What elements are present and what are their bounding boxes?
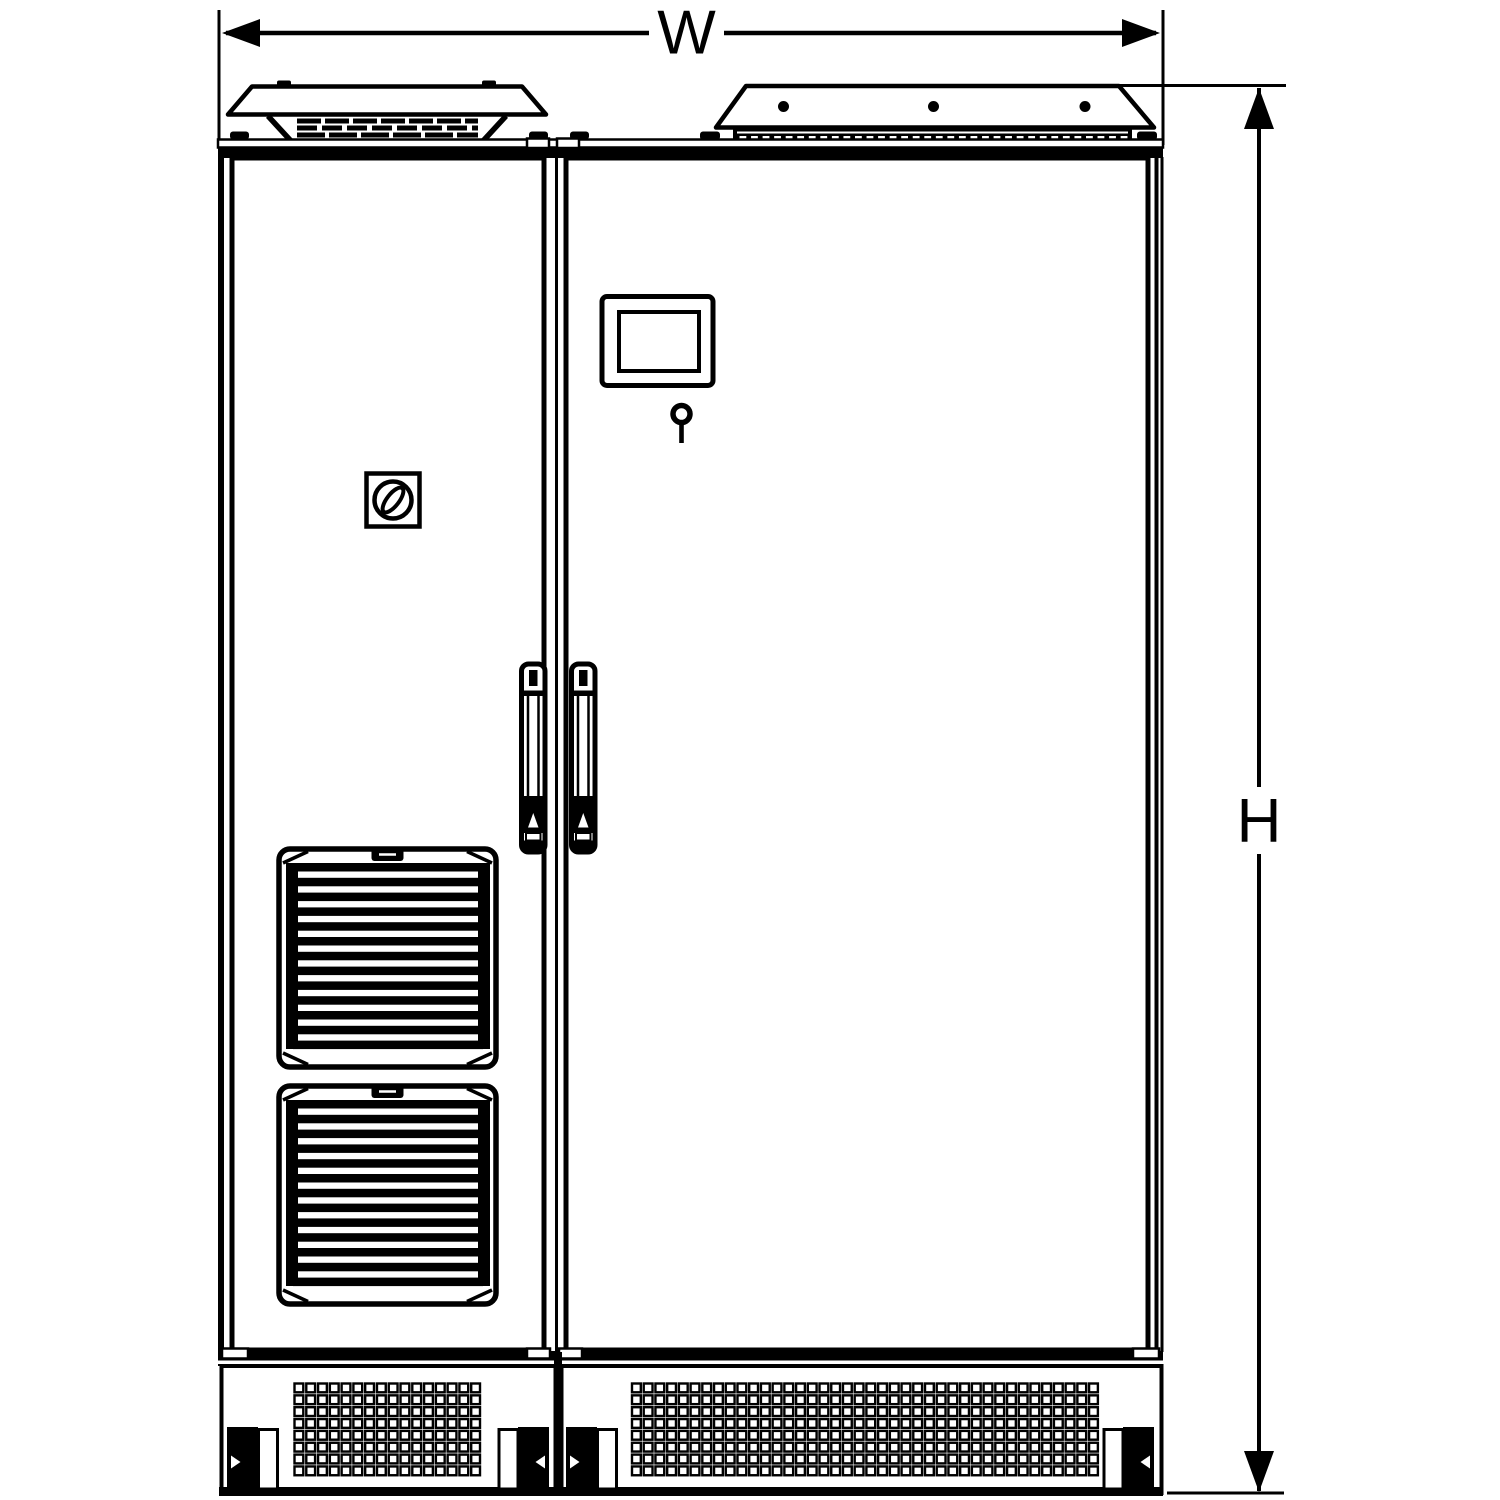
texture-cell — [632, 1419, 641, 1428]
texture-cell — [401, 1431, 410, 1440]
texture-cell — [1019, 1407, 1028, 1416]
rail-cap-bump — [230, 132, 249, 140]
texture-cell — [691, 1466, 700, 1475]
texture-cell — [1030, 1395, 1039, 1404]
texture-cell — [353, 1455, 362, 1464]
texture-cell — [1042, 1395, 1051, 1404]
texture-cell — [866, 1384, 875, 1393]
texture-cell — [365, 1466, 374, 1475]
texture-cell — [655, 1466, 664, 1475]
texture-cell — [318, 1443, 327, 1452]
texture-cell — [655, 1443, 664, 1452]
texture-cell — [890, 1407, 899, 1416]
texture-cell — [714, 1395, 723, 1404]
texture-cell — [960, 1384, 969, 1393]
texture-cell — [855, 1419, 864, 1428]
texture-cell — [737, 1407, 746, 1416]
texture-cell — [389, 1419, 398, 1428]
texture-cell — [761, 1443, 770, 1452]
texture-cell — [855, 1431, 864, 1440]
texture-cell — [1007, 1431, 1016, 1440]
texture-cell — [761, 1384, 770, 1393]
texture-cell — [679, 1384, 688, 1393]
texture-cell — [436, 1455, 445, 1464]
texture-cell — [784, 1419, 793, 1428]
texture-cell — [342, 1466, 351, 1475]
texture-cell — [1019, 1395, 1028, 1404]
texture-cell — [1042, 1431, 1051, 1440]
fan-filter-bottom — [279, 1085, 496, 1304]
texture-cell — [667, 1431, 676, 1440]
texture-cell — [644, 1384, 653, 1393]
texture-cell — [1030, 1407, 1039, 1416]
texture-cell — [365, 1431, 374, 1440]
texture-cell — [843, 1407, 852, 1416]
texture-cell — [737, 1419, 746, 1428]
rail-cap-bump — [1137, 132, 1157, 141]
texture-cell — [293, 1041, 483, 1050]
texture-cell — [855, 1407, 864, 1416]
rail-hinge-cap — [222, 1349, 248, 1359]
texture-cell — [878, 1455, 887, 1464]
bottom-rail-bar — [218, 1351, 1163, 1361]
key-shaft — [679, 422, 684, 443]
screw-dot-icon — [928, 101, 939, 112]
texture-cell — [1019, 1443, 1028, 1452]
texture-cell — [995, 1455, 1004, 1464]
texture-cell — [972, 1466, 981, 1475]
texture-cell — [293, 981, 483, 990]
texture-cell — [1089, 1407, 1098, 1416]
texture-cell — [831, 1455, 840, 1464]
texture-cell — [330, 1395, 339, 1404]
plinth-gap-bar — [554, 1352, 562, 1496]
texture-cell — [471, 1419, 480, 1428]
texture-cell — [937, 1395, 946, 1404]
texture-cell — [784, 1443, 793, 1452]
texture-cell — [471, 1466, 480, 1475]
texture-cell — [1030, 1455, 1039, 1464]
texture-cell — [937, 1431, 946, 1440]
texture-cell — [726, 1455, 735, 1464]
texture-cell — [984, 1431, 993, 1440]
texture-cell — [784, 1384, 793, 1393]
texture-cell — [714, 1431, 723, 1440]
texture-cell — [306, 1466, 315, 1475]
handle-foot-band — [576, 833, 591, 841]
texture-cell — [389, 1466, 398, 1475]
texture-cell — [342, 1384, 351, 1393]
texture-cell — [773, 1431, 782, 1440]
texture-cell — [365, 1419, 374, 1428]
texture-cell — [937, 1466, 946, 1475]
texture-cell — [726, 1466, 735, 1475]
texture-cell — [1042, 1407, 1051, 1416]
texture-cell — [890, 1443, 899, 1452]
texture-cell — [353, 1419, 362, 1428]
texture-cell — [448, 1431, 457, 1440]
texture-cell — [293, 1248, 483, 1257]
rail-hinge-cap — [527, 1349, 550, 1359]
top-entry-gland-plate-icon — [716, 86, 1154, 147]
texture-cell — [306, 1455, 315, 1464]
texture-cell — [855, 1384, 864, 1393]
texture-cell — [761, 1407, 770, 1416]
texture-cell — [293, 1026, 483, 1035]
texture-cell — [330, 1431, 339, 1440]
texture-cell — [925, 1407, 934, 1416]
texture-cell — [843, 1419, 852, 1428]
arrow-up-icon — [1244, 88, 1274, 129]
texture-cell — [843, 1431, 852, 1440]
texture-cell — [866, 1395, 875, 1404]
texture-cell — [808, 1395, 817, 1404]
texture-cell — [293, 1204, 483, 1213]
texture-cell — [330, 1419, 339, 1428]
texture-cell — [714, 1407, 723, 1416]
texture-cell — [1089, 1443, 1098, 1452]
texture-cell — [808, 1419, 817, 1428]
hood-leg-right — [483, 116, 506, 141]
texture-cell — [412, 1443, 421, 1452]
texture-cell — [377, 1407, 386, 1416]
texture-cell — [330, 1407, 339, 1416]
texture-cell — [925, 1455, 934, 1464]
texture-cell — [808, 1407, 817, 1416]
texture-cell — [890, 1466, 899, 1475]
texture-cell — [831, 1466, 840, 1475]
texture-cell — [1066, 1455, 1075, 1464]
texture-cell — [784, 1466, 793, 1475]
texture-cell — [913, 1431, 922, 1440]
texture-cell — [726, 1431, 735, 1440]
texture-cell — [1019, 1384, 1028, 1393]
texture-cell — [471, 1443, 480, 1452]
texture-cell — [1030, 1466, 1039, 1475]
texture-cell — [293, 1130, 483, 1139]
texture-cell — [902, 1466, 911, 1475]
texture-cell — [855, 1466, 864, 1475]
texture-cell — [644, 1431, 653, 1440]
texture-cell — [293, 952, 483, 961]
texture-cell — [702, 1419, 711, 1428]
texture-cell — [913, 1443, 922, 1452]
texture-cell — [913, 1466, 922, 1475]
texture-cell — [866, 1443, 875, 1452]
texture-cell — [726, 1384, 735, 1393]
handle-cross-bar — [574, 691, 594, 697]
texture-cell — [972, 1407, 981, 1416]
bracket-strip — [499, 1430, 518, 1490]
texture-cell — [342, 1419, 351, 1428]
texture-cell — [412, 1455, 421, 1464]
fan-filter-top — [279, 848, 496, 1067]
texture-cell — [796, 1443, 805, 1452]
texture-cell — [293, 996, 483, 1005]
hood-leg-left — [268, 116, 291, 141]
rail-cap-bump — [700, 132, 720, 141]
texture-cell — [878, 1384, 887, 1393]
texture-cell — [655, 1419, 664, 1428]
texture-cell — [1030, 1443, 1039, 1452]
texture-cell — [412, 1395, 421, 1404]
texture-cell — [773, 1466, 782, 1475]
texture-cell — [714, 1384, 723, 1393]
texture-cell — [913, 1407, 922, 1416]
texture-cell — [1042, 1443, 1051, 1452]
texture-cell — [293, 1174, 483, 1183]
texture-cell — [1077, 1455, 1086, 1464]
texture-cell — [655, 1431, 664, 1440]
texture-cell — [679, 1466, 688, 1475]
texture-cell — [984, 1466, 993, 1475]
texture-cell — [1077, 1466, 1086, 1475]
texture-cell — [655, 1395, 664, 1404]
texture-cell — [995, 1443, 1004, 1452]
texture-cell — [632, 1407, 641, 1416]
texture-cell — [436, 1419, 445, 1428]
texture-cell — [820, 1466, 829, 1475]
texture-cell — [293, 1159, 483, 1168]
texture-cell — [644, 1455, 653, 1464]
texture-cell — [948, 1395, 957, 1404]
texture-cell — [820, 1443, 829, 1452]
bracket-strip — [598, 1430, 617, 1490]
texture-cell — [1066, 1419, 1075, 1428]
texture-cell — [306, 1419, 315, 1428]
texture-cell — [925, 1384, 934, 1393]
texture-cell — [353, 1431, 362, 1440]
texture-cell — [902, 1407, 911, 1416]
texture-cell — [843, 1384, 852, 1393]
texture-cell — [960, 1443, 969, 1452]
texture-cell — [306, 1384, 315, 1393]
arrow-left-icon — [222, 19, 260, 47]
texture-cell — [679, 1395, 688, 1404]
texture-cell — [342, 1395, 351, 1404]
texture-cell — [448, 1419, 457, 1428]
texture-cell — [295, 1384, 304, 1393]
texture-cell — [412, 1466, 421, 1475]
texture-cell — [866, 1431, 875, 1440]
texture-cell — [937, 1407, 946, 1416]
texture-cell — [726, 1395, 735, 1404]
texture-cell — [890, 1384, 899, 1393]
texture-cell — [972, 1455, 981, 1464]
texture-cell — [1089, 1395, 1098, 1404]
texture-cell — [737, 1431, 746, 1440]
texture-cell — [412, 1419, 421, 1428]
door-handle-right — [572, 664, 596, 852]
texture-cell — [436, 1443, 445, 1452]
texture-cell — [295, 1443, 304, 1452]
texture-cell — [459, 1384, 468, 1393]
texture-cell — [330, 1384, 339, 1393]
texture-cell — [960, 1395, 969, 1404]
texture-cell — [773, 1395, 782, 1404]
texture-cell — [960, 1466, 969, 1475]
texture-cell — [459, 1395, 468, 1404]
texture-cell — [1019, 1466, 1028, 1475]
roof-fan-hood-icon — [228, 81, 546, 146]
drawing-canvas: W H — [0, 0, 1500, 1500]
texture-cell — [1054, 1384, 1063, 1393]
texture-cell — [632, 1455, 641, 1464]
texture-cell — [702, 1443, 711, 1452]
texture-cell — [401, 1419, 410, 1428]
texture-cell — [937, 1384, 946, 1393]
texture-cell — [644, 1419, 653, 1428]
texture-cell — [1030, 1384, 1039, 1393]
texture-cell — [436, 1384, 445, 1393]
handle-foot — [574, 841, 594, 850]
texture-cell — [448, 1395, 457, 1404]
texture-cell — [902, 1443, 911, 1452]
texture-cell — [293, 1144, 483, 1153]
texture-cell — [679, 1407, 688, 1416]
texture-cell — [471, 1395, 480, 1404]
texture-cell — [632, 1443, 641, 1452]
texture-cell — [1030, 1419, 1039, 1428]
texture-cell — [293, 937, 483, 946]
texture-cell — [831, 1419, 840, 1428]
texture-cell — [902, 1455, 911, 1464]
texture-cell — [1089, 1384, 1098, 1393]
texture-cell — [436, 1395, 445, 1404]
arrow-down-icon — [1244, 1451, 1274, 1492]
texture-cell — [1054, 1455, 1063, 1464]
texture-cell — [761, 1431, 770, 1440]
texture-cell — [796, 1395, 805, 1404]
bracket-strip — [1104, 1430, 1123, 1490]
texture-cell — [831, 1443, 840, 1452]
texture-cell — [306, 1443, 315, 1452]
texture-cell — [1089, 1431, 1098, 1440]
texture-cell — [1054, 1419, 1063, 1428]
texture-cell — [644, 1466, 653, 1475]
texture-cell — [925, 1419, 934, 1428]
texture-cell — [995, 1466, 1004, 1475]
texture-cell — [878, 1419, 887, 1428]
texture-cell — [796, 1431, 805, 1440]
texture-cell — [773, 1407, 782, 1416]
texture-cell — [306, 1395, 315, 1404]
texture-cell — [820, 1455, 829, 1464]
texture-cell — [377, 1443, 386, 1452]
texture-cell — [761, 1419, 770, 1428]
texture-cell — [293, 922, 483, 931]
texture-cell — [878, 1466, 887, 1475]
texture-cell — [948, 1455, 957, 1464]
texture-cell — [890, 1395, 899, 1404]
texture-cell — [1066, 1443, 1075, 1452]
height-label: H — [1237, 787, 1282, 856]
texture-cell — [293, 863, 483, 872]
texture-cell — [831, 1407, 840, 1416]
texture-cell — [749, 1466, 758, 1475]
texture-cell — [855, 1443, 864, 1452]
texture-cell — [318, 1419, 327, 1428]
texture-cell — [749, 1419, 758, 1428]
texture-cell — [448, 1455, 457, 1464]
texture-cell — [306, 1431, 315, 1440]
texture-cell — [293, 907, 483, 916]
texture-cell — [667, 1455, 676, 1464]
texture-cell — [984, 1419, 993, 1428]
texture-cell — [1077, 1419, 1086, 1428]
texture-cell — [1042, 1455, 1051, 1464]
texture-cell — [679, 1455, 688, 1464]
texture-cell — [808, 1455, 817, 1464]
texture-cell — [761, 1395, 770, 1404]
texture-cell — [667, 1395, 676, 1404]
texture-cell — [749, 1395, 758, 1404]
texture-cell — [714, 1455, 723, 1464]
texture-cell — [459, 1443, 468, 1452]
texture-cell — [702, 1455, 711, 1464]
texture-cell — [353, 1443, 362, 1452]
texture-cell — [749, 1431, 758, 1440]
texture-cell — [1089, 1455, 1098, 1464]
texture-cell — [1077, 1395, 1086, 1404]
texture-cell — [365, 1395, 374, 1404]
texture-cell — [808, 1443, 817, 1452]
texture-cell — [796, 1455, 805, 1464]
texture-cell — [377, 1431, 386, 1440]
texture-cell — [808, 1466, 817, 1475]
texture-cell — [342, 1431, 351, 1440]
texture-cell — [1042, 1384, 1051, 1393]
texture-cell — [784, 1431, 793, 1440]
texture-cell — [436, 1431, 445, 1440]
plinth-right — [559, 1366, 1163, 1493]
texture-cell — [342, 1407, 351, 1416]
texture-cell — [295, 1466, 304, 1475]
texture-cell — [925, 1431, 934, 1440]
key-head — [673, 406, 690, 423]
texture-cell — [655, 1455, 664, 1464]
plinth-corner-bracket — [566, 1427, 617, 1491]
texture-cell — [293, 1100, 483, 1109]
texture-cell — [737, 1443, 746, 1452]
texture-cell — [1007, 1455, 1016, 1464]
texture-cell — [632, 1466, 641, 1475]
plinth-corner-bracket — [499, 1427, 549, 1491]
texture-cell — [948, 1384, 957, 1393]
texture-cell — [843, 1443, 852, 1452]
texture-cell — [644, 1395, 653, 1404]
texture-cell — [330, 1466, 339, 1475]
texture-cell — [726, 1419, 735, 1428]
texture-cell — [843, 1395, 852, 1404]
texture-cell — [459, 1407, 468, 1416]
texture-cell — [878, 1407, 887, 1416]
texture-cell — [913, 1384, 922, 1393]
texture-cell — [714, 1443, 723, 1452]
texture-cell — [293, 1011, 483, 1020]
handle-lock-insert — [579, 670, 588, 686]
texture-cell — [972, 1443, 981, 1452]
texture-cell — [773, 1455, 782, 1464]
texture-cell — [293, 893, 483, 902]
texture-cell — [761, 1466, 770, 1475]
texture-cell — [293, 1233, 483, 1242]
texture-cell — [937, 1419, 946, 1428]
texture-cell — [1007, 1407, 1016, 1416]
texture-cell — [737, 1466, 746, 1475]
texture-cell — [902, 1419, 911, 1428]
rail-hinge-cap — [559, 1349, 582, 1359]
